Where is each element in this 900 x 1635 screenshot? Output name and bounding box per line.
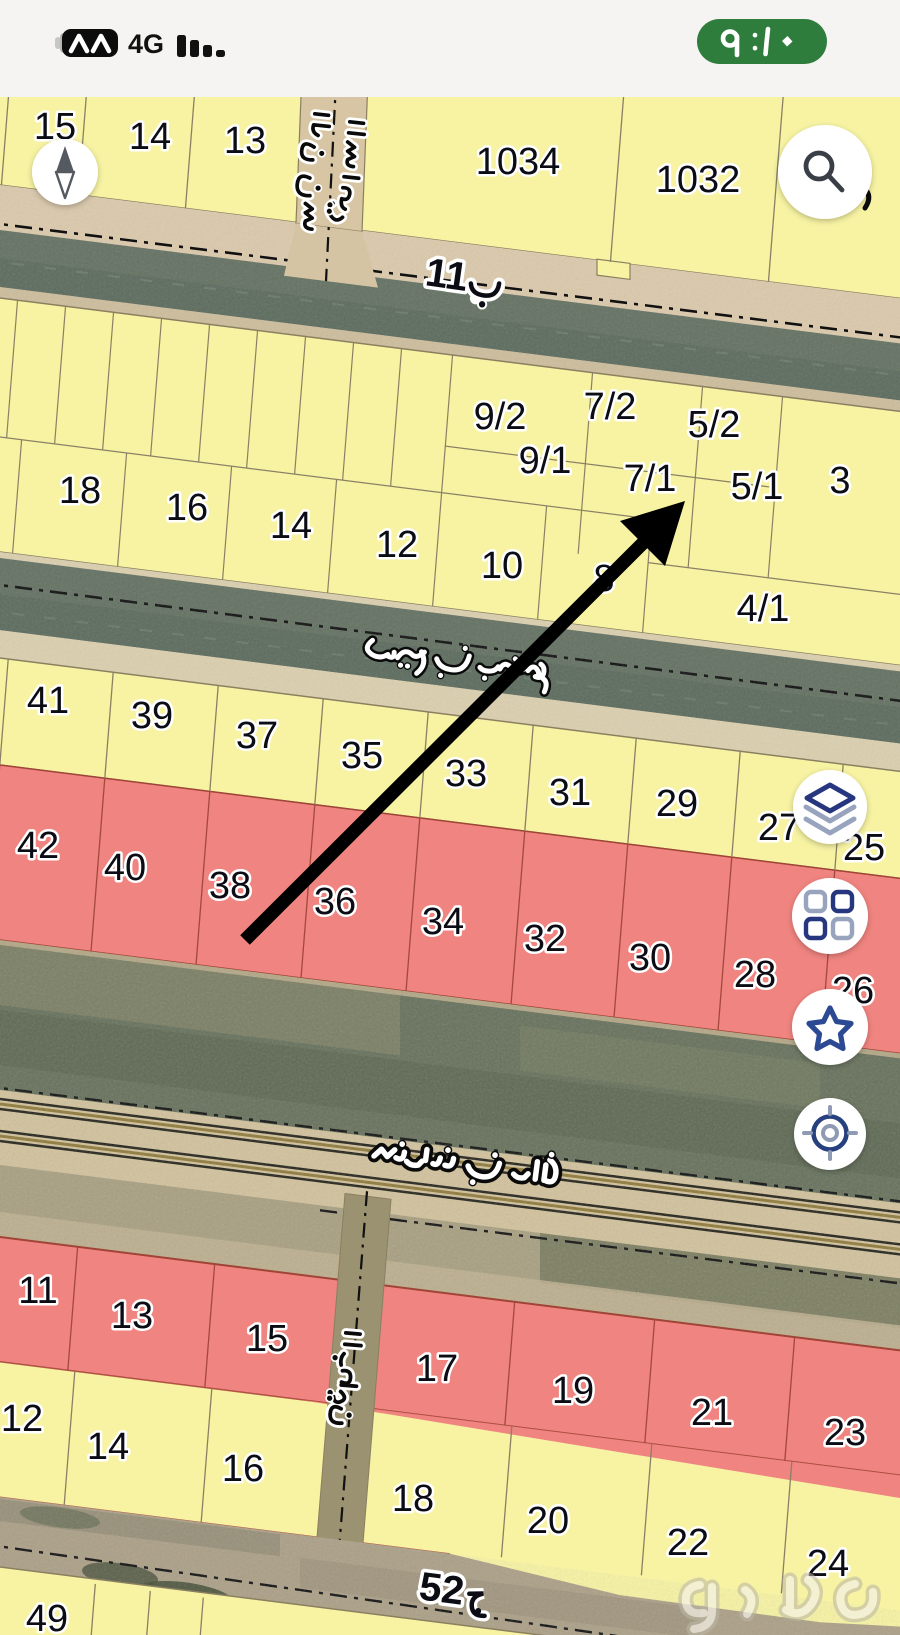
svg-text:17: 17 — [416, 1348, 458, 1390]
svg-text:21: 21 — [691, 1392, 733, 1434]
svg-text:36: 36 — [314, 881, 356, 923]
svg-text:34: 34 — [422, 901, 464, 943]
svg-text:38: 38 — [209, 865, 251, 907]
svg-text:14: 14 — [87, 1426, 129, 1468]
svg-text:23: 23 — [824, 1412, 866, 1454]
svg-text:33: 33 — [445, 753, 487, 795]
svg-text:1032: 1032 — [656, 159, 741, 201]
svg-text:15: 15 — [246, 1318, 288, 1360]
svg-text:11: 11 — [18, 1270, 57, 1312]
svg-text:30: 30 — [629, 937, 671, 979]
svg-text:19: 19 — [552, 1370, 594, 1412]
svg-text:7/2: 7/2 — [584, 386, 637, 428]
svg-text:41: 41 — [27, 680, 69, 722]
svg-text:18: 18 — [59, 470, 101, 512]
svg-text:40: 40 — [104, 847, 146, 889]
svg-text:10: 10 — [481, 545, 523, 587]
svg-text:13: 13 — [224, 120, 266, 162]
svg-text:12: 12 — [1, 1398, 43, 1440]
svg-text:31: 31 — [549, 772, 591, 814]
svg-text:5/1: 5/1 — [731, 466, 784, 508]
svg-text:11: 11 — [423, 250, 471, 299]
svg-text:28: 28 — [734, 954, 776, 996]
svg-text:16: 16 — [166, 487, 208, 529]
svg-text:9/2: 9/2 — [474, 396, 527, 438]
svg-text:13: 13 — [111, 1295, 153, 1337]
svg-text:7/1: 7/1 — [624, 458, 677, 500]
svg-text:42: 42 — [17, 825, 59, 867]
svg-text:1034: 1034 — [476, 141, 561, 183]
svg-text:4/1: 4/1 — [737, 588, 790, 630]
svg-text:5/2: 5/2 — [688, 404, 741, 446]
svg-text:22: 22 — [667, 1522, 709, 1564]
svg-text:49: 49 — [26, 1598, 68, 1635]
svg-text:29: 29 — [656, 783, 698, 825]
svg-text:35: 35 — [341, 735, 383, 777]
svg-text:20: 20 — [527, 1500, 569, 1542]
svg-text:32: 32 — [524, 918, 566, 960]
svg-text:14: 14 — [270, 505, 312, 547]
svg-text:3: 3 — [829, 460, 850, 502]
svg-text:9/1: 9/1 — [519, 440, 572, 482]
svg-text:12: 12 — [376, 524, 418, 566]
svg-text:16: 16 — [222, 1448, 264, 1490]
svg-text:39: 39 — [131, 695, 173, 737]
svg-text:14: 14 — [129, 116, 171, 158]
svg-text:37: 37 — [236, 715, 278, 757]
svg-text:52: 52 — [417, 1564, 467, 1613]
svg-text:4G: 4G — [128, 29, 164, 59]
svg-text:18: 18 — [392, 1478, 434, 1520]
